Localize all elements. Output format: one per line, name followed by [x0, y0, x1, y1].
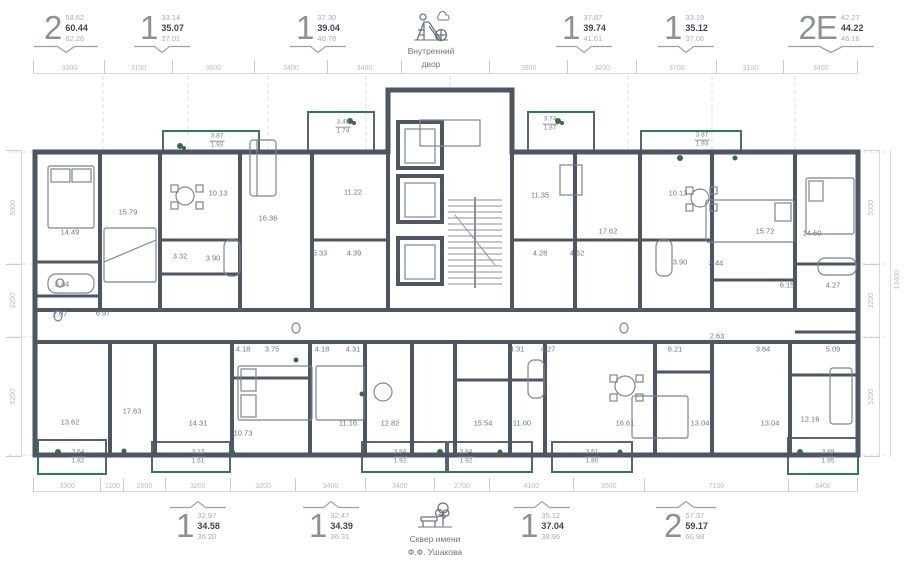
- dimension-value: 3300: [59, 483, 75, 491]
- courtyard-label-line1: Внутренний: [408, 46, 455, 57]
- brace-down: [290, 45, 346, 54]
- balcony-area-full: 3.61: [585, 449, 600, 458]
- balcony-area-full: 3.74: [543, 116, 558, 125]
- apartment-type: 1: [562, 12, 579, 43]
- balcony-area-full: 3.23: [191, 449, 206, 458]
- park-landmark: Сквер имени Ф.Ф. Ушакова: [392, 500, 478, 558]
- dimension-value: 3400: [283, 65, 299, 73]
- brace-down: [788, 45, 874, 54]
- balcony-area-label: 3.741.87: [543, 116, 558, 133]
- room-area-label: 8.21: [668, 345, 683, 354]
- apartment-label-bottom-1: 1 32.97 34.58 36.20: [170, 499, 226, 542]
- room-area-label: 4.39: [347, 249, 362, 258]
- balcony-area-label: 3.891.95: [821, 449, 836, 466]
- area-max: 36.20: [197, 532, 220, 542]
- balcony-area-full: 3.48: [336, 119, 351, 128]
- area-min: 57.37: [685, 511, 708, 521]
- room-area-label: 13.04: [761, 419, 780, 428]
- balcony-area-full: 3.87: [210, 133, 225, 142]
- brace-down: [658, 45, 714, 54]
- dimension-value: 3200: [868, 293, 875, 309]
- area-mid: 34.58: [197, 521, 220, 533]
- room-area-label: 3.32: [173, 252, 188, 261]
- brace-down: [34, 45, 98, 54]
- brace-down: [556, 45, 612, 54]
- balcony-area-reduced: 1.93: [211, 142, 224, 149]
- room-area-label: 11.35: [531, 191, 549, 200]
- room-area-label: 6.15: [780, 281, 795, 290]
- balcony-area-reduced: 1.87: [544, 125, 557, 132]
- dimension-value: 5200: [10, 389, 17, 405]
- dimension-segment: 3400: [254, 60, 328, 74]
- balcony-area-reduced: 1.92: [460, 458, 473, 465]
- balcony-area-reduced: 1.92: [394, 458, 407, 465]
- dimension-overall-line: [890, 150, 891, 457]
- dimension-value: 5200: [868, 389, 875, 405]
- dimension-value: 3300: [61, 65, 77, 73]
- dimension-segment: 5000: [6, 150, 22, 264]
- room-area-label: 10.13: [669, 189, 688, 198]
- room-area-label: 15.72: [756, 227, 775, 236]
- dimension-segment: 5200: [864, 337, 880, 457]
- apartment-type: 1: [520, 510, 537, 541]
- dimension-value: 3100: [743, 65, 759, 73]
- room-area-label: 4.28: [533, 249, 548, 258]
- dimension-segment: 5200: [6, 337, 22, 457]
- apartment-type: 1: [664, 12, 681, 43]
- dimension-value: 4100: [524, 483, 540, 491]
- dimension-segment: 3200: [230, 478, 295, 492]
- balcony-area-label: 3.841.92: [393, 449, 408, 466]
- area-mid: 34.39: [330, 521, 353, 533]
- apartment-label-bottom-3: 1 35.12 37.04 38.96: [514, 499, 570, 542]
- floor-plan-page: 2 58.62 60.44 62.26 1 33.14 35.07 37.01 …: [0, 0, 916, 581]
- room-area-label: 3.90: [206, 254, 221, 263]
- area-max: 62.26: [65, 34, 88, 44]
- park-label-line1: Сквер имени: [410, 534, 461, 545]
- balcony-area-reduced: 1.95: [822, 458, 835, 465]
- area-min: 32.97: [197, 511, 220, 521]
- apartment-label-bottom-4: 2 57.37 59.17 60.98: [656, 499, 716, 542]
- room-area-label: 11.22: [344, 188, 362, 197]
- dimension-segment: 3400: [783, 60, 858, 74]
- dimension-value: 3200: [10, 293, 17, 309]
- dimension-segment: 3800: [172, 60, 254, 74]
- area-min: 42.27: [841, 13, 864, 23]
- room-area-label: 4.18: [315, 345, 330, 354]
- balcony-area-reduced: 1.82: [72, 458, 85, 465]
- room-area-label: 16.36: [259, 214, 278, 223]
- dimension-value: 2700: [454, 483, 470, 491]
- dimension-segment: 1100: [100, 478, 123, 492]
- dimension-segment: 3400: [295, 478, 364, 492]
- area-min: 33.19: [685, 13, 708, 23]
- apartment-label-top-3: 1 37.30 39.04 40.78: [290, 12, 346, 54]
- dimension-value: 3400: [323, 483, 339, 491]
- room-area-label: 10.13: [209, 189, 228, 198]
- apartment-type: 2: [664, 510, 681, 541]
- area-mid: 60.44: [65, 23, 88, 35]
- dimension-value: 3800: [205, 65, 221, 73]
- dimension-segment: 3200: [165, 478, 230, 492]
- area-min: 32.47: [330, 511, 353, 521]
- room-area-label: 13.04: [691, 419, 710, 428]
- room-area-label: 14.31: [189, 419, 208, 428]
- dimension-value: 3400: [815, 483, 831, 491]
- dimension-segment: 2000: [123, 478, 164, 492]
- room-area-label: 4.27: [826, 281, 841, 290]
- dimension-segment: 3100: [104, 60, 171, 74]
- dimension-value: 2000: [137, 483, 153, 491]
- room-area-label: 6.97: [96, 309, 111, 318]
- dimension-strip-right: 500032005200: [864, 150, 880, 457]
- dimension-value: 3700: [669, 65, 685, 73]
- dimension-value: 3400: [357, 65, 373, 73]
- room-area-label: 5.09: [826, 345, 841, 354]
- dimension-value: 5000: [10, 200, 17, 216]
- dimension-segment: 3500: [573, 478, 644, 492]
- area-mid: 59.17: [685, 521, 708, 533]
- room-area-label: 12.82: [381, 419, 400, 428]
- balcony-area-label: 3.231.61: [191, 449, 206, 466]
- room-area-label: 14.49: [61, 228, 80, 237]
- apartment-label-bottom-2: 1 32.47 34.39 36.31: [303, 499, 359, 542]
- room-area-label: 3.44: [709, 259, 724, 268]
- balcony-area-full: 3.64: [71, 449, 86, 458]
- area-min: 35.12: [541, 511, 564, 521]
- balcony-area-label: 3.481.74: [336, 119, 351, 136]
- apartment-type: 2Е: [799, 12, 837, 43]
- dimension-segment: 2700: [434, 478, 489, 492]
- room-area-label: 13.62: [61, 418, 80, 427]
- balcony-area-reduced: 1.61: [192, 458, 205, 465]
- balcony-area-reduced: 1.93: [696, 141, 709, 148]
- dimension-segment: 4100: [489, 478, 572, 492]
- dimension-strip-left: 500032005200: [6, 150, 22, 457]
- room-area-label: 17.63: [123, 407, 142, 416]
- balcony-area-label: 3.871.93: [210, 133, 225, 150]
- room-area-label: 4.62: [570, 249, 585, 258]
- balcony-area-label: 3.871.93: [695, 132, 710, 149]
- room-area-label: 16.61: [616, 419, 635, 428]
- dimension-value: 1100: [105, 483, 120, 491]
- dimension-segment: 3700: [636, 60, 716, 74]
- brace-down: [134, 45, 190, 54]
- area-max: 36.31: [330, 532, 353, 542]
- dimension-value: 3400: [392, 483, 408, 491]
- area-min: 37.30: [317, 13, 340, 23]
- area-mid: 44.22: [841, 23, 864, 35]
- dimension-segment: 3200: [567, 60, 636, 74]
- area-max: 41.61: [583, 34, 606, 44]
- dimension-value: 3400: [813, 65, 829, 73]
- apartment-label-top-5: 1 33.19 35.12 37.06: [658, 12, 714, 54]
- room-area-label: 17.62: [599, 227, 618, 236]
- area-max: 37.01: [161, 34, 184, 44]
- dimension-strip-top: 3300310038003400340036003200370031003400: [33, 60, 858, 74]
- dimension-segment: 3400: [327, 60, 401, 74]
- dimension-value: 5000: [868, 200, 875, 216]
- balcony-area-label: 3.611.80: [585, 449, 600, 466]
- room-area-label: 2.07: [53, 310, 68, 319]
- dimension-overall-label: 13400: [894, 270, 901, 289]
- dimension-segment: 3200: [6, 264, 22, 337]
- dimension-value: 3200: [190, 483, 206, 491]
- area-max: 46.16: [841, 34, 864, 44]
- projection-lines: [8, 76, 886, 455]
- dimension-segment: 3600: [489, 60, 567, 74]
- dimension-segment: 3300: [33, 60, 104, 74]
- area-min: 37.87: [583, 13, 606, 23]
- dimension-segment: 3200: [864, 264, 880, 337]
- room-area-label: 4.27: [541, 345, 556, 354]
- playground-icon: [410, 8, 452, 44]
- balcony-area-full: 3.84: [393, 449, 408, 458]
- area-max: 37.06: [685, 34, 708, 44]
- room-area-label: 15.79: [119, 208, 138, 217]
- area-min: 58.62: [65, 13, 88, 23]
- dimension-value: 3200: [594, 65, 610, 73]
- balcony-area-full: 3.89: [821, 449, 836, 458]
- room-area-label: 3.84: [756, 345, 771, 354]
- area-mid: 35.12: [685, 23, 708, 35]
- area-mid: 39.04: [317, 23, 340, 35]
- furniture: [48, 140, 856, 438]
- apartment-label-top-2: 1 33.14 35.07 37.01: [134, 12, 190, 54]
- dimension-segment: 5000: [864, 150, 880, 264]
- area-mid: 37.04: [541, 521, 564, 533]
- apartment-label-top-1: 2 58.62 60.44 62.26: [34, 12, 98, 54]
- floor-plan-drawing: [0, 0, 916, 581]
- dimension-segment: 7100: [644, 478, 788, 492]
- apartment-type: 1: [296, 12, 313, 43]
- apartment-type: 1: [176, 510, 193, 541]
- apartment-label-top-6: 2Е 42.27 44.22 46.16: [788, 12, 874, 54]
- room-area-label: 3.90: [673, 258, 688, 267]
- room-area-label: 4.31: [510, 345, 525, 354]
- dimension-value: 3100: [131, 65, 147, 73]
- apartment-type: 2: [44, 12, 61, 43]
- park-label-line2: Ф.Ф. Ушакова: [408, 547, 462, 558]
- dimension-segment: [401, 60, 489, 74]
- room-area-label: 14.60: [803, 229, 822, 238]
- room-area-label: 12.16: [801, 415, 820, 424]
- dimension-segment: 3400: [365, 478, 434, 492]
- area-max: 40.78: [317, 34, 340, 44]
- dimension-segment: 3300: [33, 478, 100, 492]
- room-area-label: 15.54: [474, 419, 493, 428]
- park-icon: [415, 500, 455, 532]
- area-mid: 39.74: [583, 23, 606, 35]
- dimension-value: 3500: [601, 483, 617, 491]
- room-area-label: 10.73: [234, 429, 253, 438]
- dimension-value: 3600: [521, 65, 537, 73]
- area-max: 38.96: [541, 532, 564, 542]
- area-max: 60.98: [685, 532, 708, 542]
- area-min: 33.14: [161, 13, 184, 23]
- room-area-label: 4.31: [346, 345, 361, 354]
- staircase: [448, 197, 502, 288]
- apartment-type: 1: [309, 510, 326, 541]
- apartment-type: 1: [140, 12, 157, 43]
- room-area-label: 11.00: [513, 419, 531, 428]
- dimension-value: 3200: [255, 483, 271, 491]
- apartment-label-top-4: 1 37.87 39.74 41.61: [556, 12, 612, 54]
- room-area-label: 4.18: [236, 345, 251, 354]
- room-area-label: 2.63: [710, 332, 725, 341]
- dimension-segment: 3400: [788, 478, 858, 492]
- dimension-value: 7100: [709, 483, 725, 491]
- balcony-area-full: 3.84: [459, 449, 474, 458]
- balcony-area-label: 3.841.92: [459, 449, 474, 466]
- balcony-area-reduced: 1.74: [337, 128, 350, 135]
- dimension-strip-bottom: 3300110020003200320034003400270041003500…: [33, 478, 858, 492]
- balcony-area-label: 3.641.82: [71, 449, 86, 466]
- room-area-label: 3.84: [55, 280, 70, 289]
- interior-walls: [35, 122, 858, 455]
- balcony-area-reduced: 1.80: [586, 458, 599, 465]
- balcony-area-full: 3.87: [695, 132, 710, 141]
- area-mid: 35.07: [161, 23, 184, 35]
- room-area-label: 11.16: [339, 419, 357, 428]
- room-area-label: 5.33: [313, 249, 328, 258]
- room-area-label: 3.75: [265, 345, 280, 354]
- dimension-segment: 3100: [716, 60, 783, 74]
